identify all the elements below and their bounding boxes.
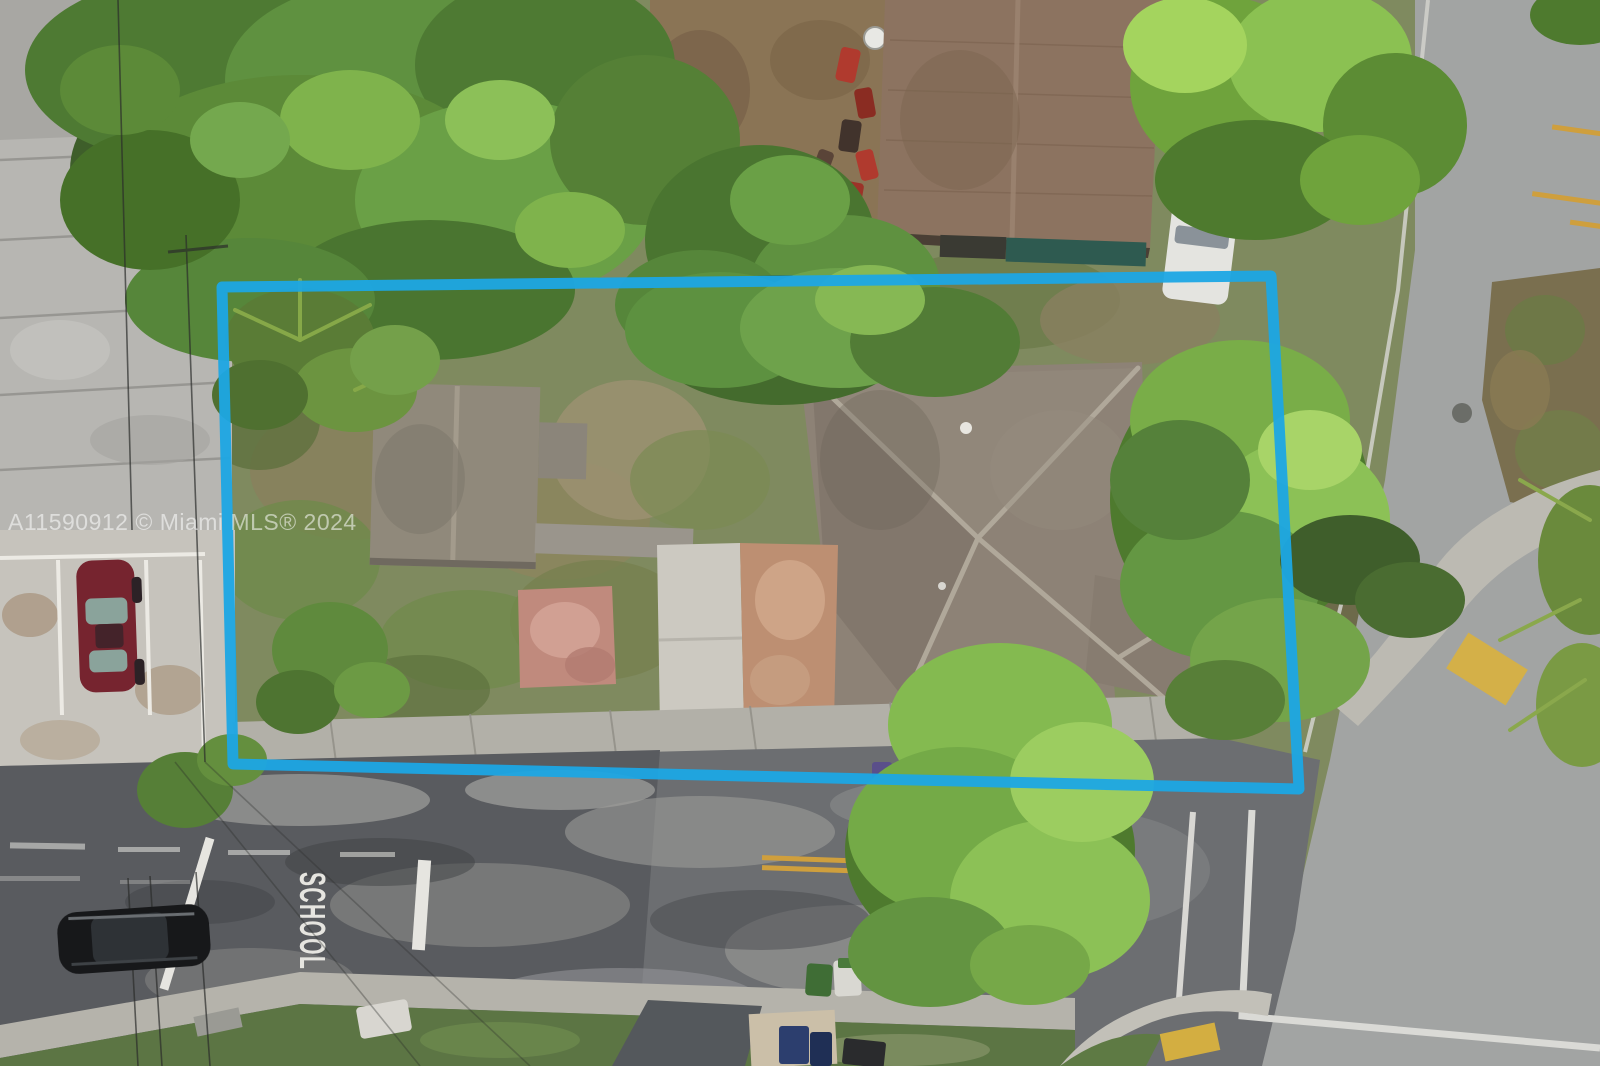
teal-porch-roof — [1006, 238, 1147, 267]
school-road-marking: SCHOOL — [291, 872, 331, 970]
manhole-cover — [1452, 403, 1472, 423]
satellite-dish — [864, 27, 886, 49]
aerial-property-photo: SCHOOL — [0, 0, 1600, 1066]
roof-vent — [960, 422, 972, 434]
mls-watermark: A11590912 © Miami MLS® 2024 — [8, 509, 357, 535]
white-driveway-strip — [657, 543, 744, 728]
black-car — [56, 903, 212, 975]
red-car — [76, 559, 146, 693]
aerial-photo-canvas: SCHOOL — [0, 0, 1600, 1066]
parking-lot — [0, 530, 235, 775]
